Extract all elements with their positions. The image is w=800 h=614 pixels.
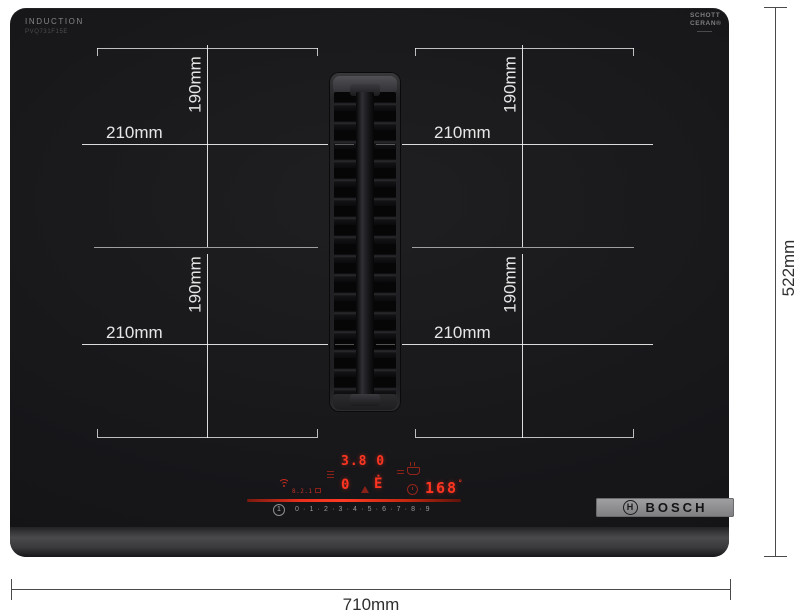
left-zone-top-tick-r (317, 48, 318, 56)
timer-digits: 168 (425, 479, 458, 497)
right-zone-bottom-tick-r (633, 429, 634, 437)
cooktop-front-edge (10, 527, 729, 557)
zone-height-label-upper-right: 190mm (502, 50, 519, 120)
left-zone-divider-line (94, 247, 318, 248)
vent-module-center-bar (356, 92, 374, 400)
zone-width-label-lower-right: 210mm (434, 324, 491, 341)
power-display-top: 3.8 0 (341, 454, 385, 469)
zone-width-dimline-lower-left (82, 344, 328, 345)
zone-width-label-upper-left: 210mm (106, 124, 163, 141)
power-scale: 0 · 1 · 2 · 3 · 4 · 5 · 6 · 7 · 8 · 9 (295, 506, 431, 513)
product-dimension-diagram: INDUCTION PVQ731F15E SCHOTT CERAN® 210mm… (0, 0, 800, 614)
zone-height-dimline-upper-left (207, 45, 208, 247)
menu-bars-icon (327, 471, 334, 478)
clock-icon (407, 484, 418, 495)
zone-width-dimline-lower-right (402, 344, 653, 345)
dimline-dash-over-grille-1 (335, 144, 354, 145)
right-zone-bottom-line (415, 437, 634, 438)
aux-chip-icon (315, 488, 321, 493)
equals-bars-icon (397, 470, 404, 474)
right-zone-top-tick-l (415, 48, 416, 56)
dimline-dash-over-grille-3 (335, 344, 354, 345)
left-zone-top-tick-l (97, 48, 98, 56)
zone-height-dimline-lower-left (207, 254, 208, 438)
zone-height-label-upper-left: 190mm (187, 50, 204, 120)
left-zone-bottom-tick-l (97, 429, 98, 437)
steam-pot-icon (407, 462, 420, 474)
zone-height-dimline-upper-right (522, 45, 523, 247)
induction-label: INDUCTION (25, 17, 84, 26)
vent-module-cap-bottom (350, 394, 380, 406)
zone-height-label-lower-right: 190mm (502, 250, 519, 320)
overall-width-label: 710mm (11, 595, 731, 614)
dimline-dash-over-grille-2 (376, 144, 395, 145)
power-display-left: 0 (341, 477, 349, 493)
left-zone-bottom-tick-r (317, 429, 318, 437)
timer-display: 168° (425, 479, 464, 497)
zone-height-dimline-lower-right (522, 254, 523, 438)
width-dimension-line (11, 589, 731, 590)
zone-height-label-lower-left: 190mm (187, 250, 204, 320)
model-label: PVQ731F15E (25, 29, 68, 35)
timer-unit-mark: ° (458, 479, 464, 487)
schott-logo-rule (697, 31, 712, 32)
right-zone-bottom-tick-l (415, 429, 416, 437)
info-key: 1 (273, 504, 285, 516)
aux-readout-text: 8.2.1 (292, 488, 313, 495)
bosch-armature-icon: H (623, 500, 638, 515)
bosch-wordmark: BOSCH (646, 500, 708, 515)
zone-width-dimline-upper-right (402, 144, 653, 145)
height-dimension-tick-top (764, 7, 787, 8)
zone-width-label-lower-left: 210mm (106, 324, 163, 341)
right-zone-top-tick-r (633, 48, 634, 56)
ceran-line: CERAN® (690, 20, 722, 28)
bosch-logo-plate: H BOSCH (596, 498, 734, 517)
wifi-icon (278, 479, 290, 489)
schott-ceran-logo: SCHOTT CERAN® (690, 12, 722, 28)
warning-triangle-icon (361, 486, 369, 493)
height-dimension-line (775, 8, 776, 557)
schott-line: SCHOTT (690, 12, 722, 20)
vent-mode-indicator: Ė (374, 476, 382, 492)
overall-height-label: 522mm (781, 233, 797, 303)
right-zone-top-line (415, 48, 634, 49)
right-zone-divider-line (412, 247, 634, 248)
zone-width-label-upper-right: 210mm (434, 124, 491, 141)
dimline-dash-over-grille-4 (376, 344, 395, 345)
height-dimension-tick-bottom (764, 556, 787, 557)
aux-readout: 8.2.1 (292, 488, 321, 495)
zone-width-dimline-upper-left (82, 144, 328, 145)
power-slider-line (247, 499, 461, 502)
